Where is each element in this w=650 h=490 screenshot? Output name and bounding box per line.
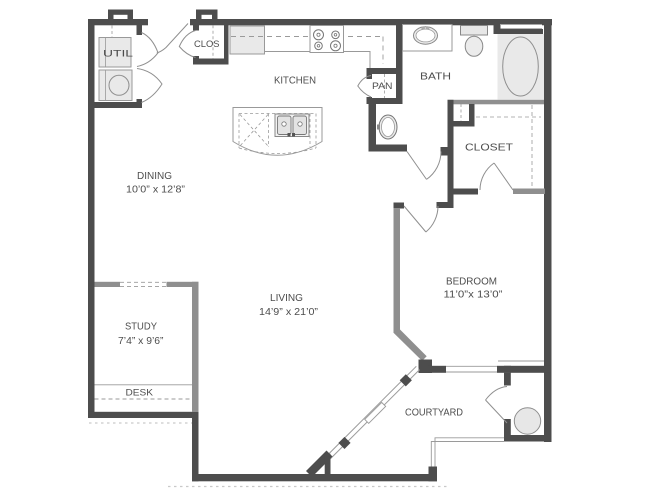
svg-text:COURTYARD: COURTYARD bbox=[405, 408, 463, 419]
svg-text:DESK: DESK bbox=[126, 388, 154, 399]
svg-text:PAN: PAN bbox=[372, 81, 393, 92]
svg-text:KITCHEN: KITCHEN bbox=[274, 76, 316, 87]
svg-text:CLOS: CLOS bbox=[194, 39, 220, 50]
svg-text:7’4” x 9’6”: 7’4” x 9’6” bbox=[118, 336, 164, 347]
svg-text:10’0” x 12’8”: 10’0” x 12’8” bbox=[126, 185, 185, 196]
svg-text:14’9” x 21’0”: 14’9” x 21’0” bbox=[259, 307, 318, 318]
svg-text:BEDROOM: BEDROOM bbox=[446, 277, 497, 288]
svg-text:BATH: BATH bbox=[420, 72, 451, 83]
svg-text:DINING: DINING bbox=[137, 171, 172, 182]
svg-text:UTIL: UTIL bbox=[103, 49, 133, 60]
svg-text:STUDY: STUDY bbox=[125, 322, 157, 333]
svg-text:11’0”x 13’0”: 11’0”x 13’0” bbox=[444, 290, 503, 301]
svg-text:CLOSET: CLOSET bbox=[465, 143, 513, 154]
svg-text:LIVING: LIVING bbox=[270, 293, 303, 304]
